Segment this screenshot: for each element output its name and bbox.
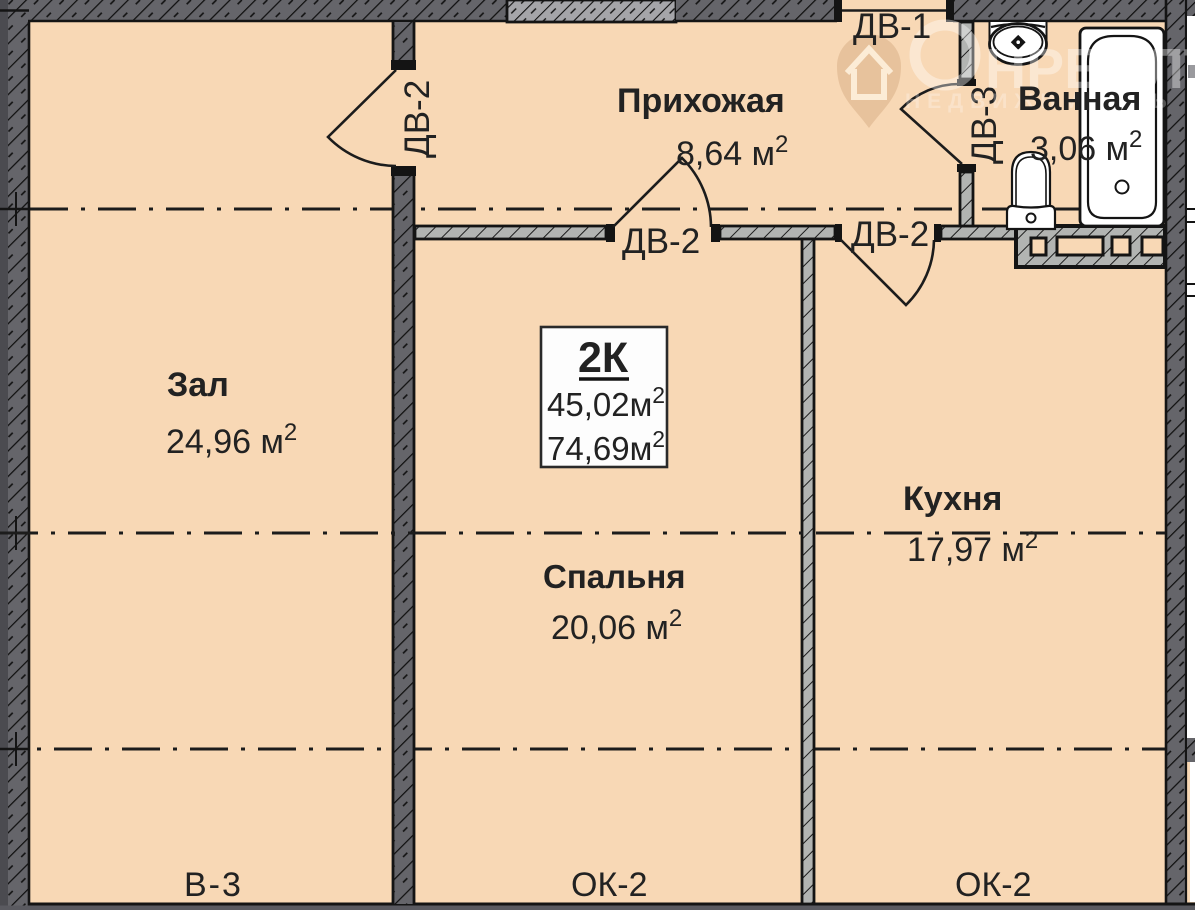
svg-text:Кухня: Кухня xyxy=(903,480,1002,518)
svg-text:ДВ-2: ДВ-2 xyxy=(851,215,929,254)
svg-text:Спальня: Спальня xyxy=(543,558,686,595)
svg-text:74,69м2: 74,69м2 xyxy=(547,426,665,467)
svg-text:Прихожая: Прихожая xyxy=(617,82,785,120)
svg-text:ДВ-1: ДВ-1 xyxy=(853,7,931,46)
svg-text:ОК-2: ОК-2 xyxy=(955,866,1031,904)
svg-text:2К: 2К xyxy=(578,334,629,382)
svg-text:24,96 м2: 24,96 м2 xyxy=(166,419,297,461)
svg-text:20,06 м2: 20,06 м2 xyxy=(551,605,682,647)
svg-text:3,06 м2: 3,06 м2 xyxy=(1030,126,1142,168)
svg-text:17,97 м2: 17,97 м2 xyxy=(907,527,1038,569)
svg-text:В-3: В-3 xyxy=(184,866,243,904)
svg-text:ДВ-2: ДВ-2 xyxy=(398,80,437,158)
svg-text:ОК-2: ОК-2 xyxy=(571,866,647,904)
svg-text:8,64 м2: 8,64 м2 xyxy=(676,131,788,173)
svg-text:45,02м2: 45,02м2 xyxy=(547,382,665,423)
svg-text:Ванная: Ванная xyxy=(1018,80,1141,118)
svg-text:ДВ-2: ДВ-2 xyxy=(622,222,700,261)
svg-text:Зал: Зал xyxy=(167,366,229,404)
